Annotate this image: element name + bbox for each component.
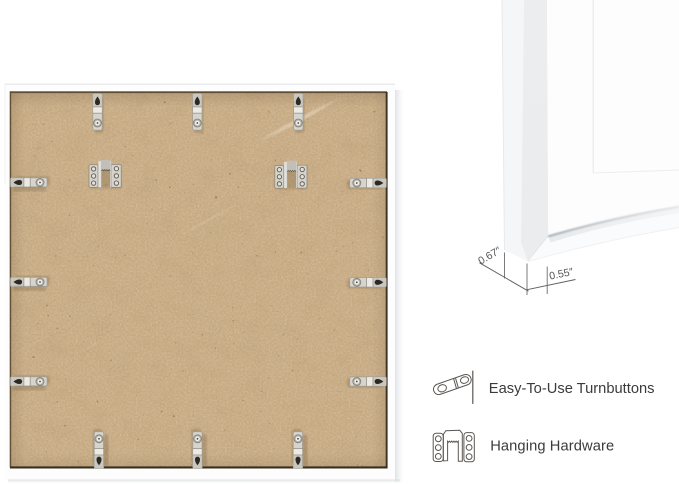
svg-text:Hanging Hardware: Hanging Hardware bbox=[490, 439, 614, 455]
svg-text:Easy-To-Use Turnbuttons: Easy-To-Use Turnbuttons bbox=[489, 381, 655, 397]
